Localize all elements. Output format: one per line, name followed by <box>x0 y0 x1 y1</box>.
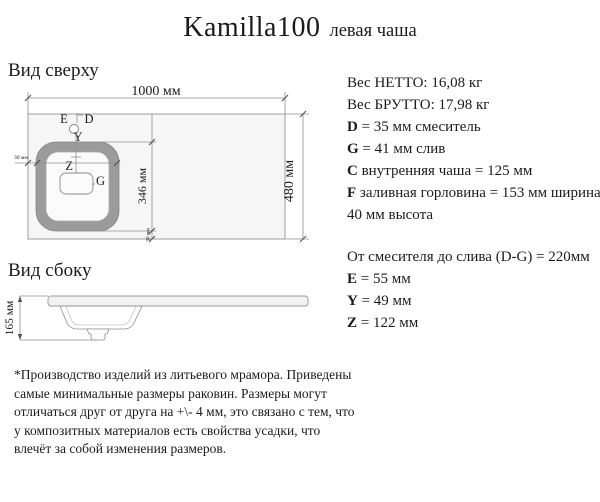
spec-value: заливная горловина = 153 мм ширина, <box>356 185 600 201</box>
bowl-profile <box>60 306 142 329</box>
note-line: влечёт за собой изменения размеров. <box>14 440 374 459</box>
bowl-dimension-label: 346 мм <box>135 168 149 205</box>
spec-key: E <box>347 271 357 287</box>
label-z: Z <box>65 159 73 173</box>
spec-line-f-height: 40 мм высота <box>347 204 600 226</box>
label-d: D <box>84 112 93 126</box>
top-view-heading: Вид сверху <box>8 60 99 82</box>
spec-line-d: D = 35 мм смеситель <box>347 116 600 138</box>
spec-key: C <box>347 163 358 179</box>
bottom-edge-dimension-label: 30 мм <box>146 228 152 242</box>
arrowhead-up <box>18 296 22 302</box>
note-line: отличаться друг от друга на +\- 4 мм, эт… <box>14 403 374 422</box>
product-variant: левая чаша <box>329 21 416 42</box>
top-view-drawing: 1000 мм 480 мм E D Y Z G 346 мм <box>0 85 330 250</box>
depth-dimension-label: 480 мм <box>282 160 297 202</box>
label-e: E <box>60 112 68 126</box>
spec-key: F <box>347 185 356 201</box>
spec-line-f: F заливная горловина = 153 мм ширина, <box>347 182 600 204</box>
note-line: самые минимальные размеры раковин. Разме… <box>14 385 374 404</box>
spec-line-net-weight: Вес НЕТТО: 16,08 кг <box>347 72 600 94</box>
spec-line-g: G = 41 мм слив <box>347 138 600 160</box>
spec-key: D <box>347 119 358 135</box>
bowl-inner-profile <box>66 307 136 325</box>
spec-value: = 49 мм <box>358 293 412 309</box>
slab-outline <box>48 296 308 306</box>
spec-key: Z <box>347 315 357 331</box>
spec-key: G <box>347 141 359 157</box>
drain-fitting-profile <box>87 329 109 340</box>
spec-value: 40 мм высота <box>347 207 433 223</box>
spec-value: = 55 мм <box>357 271 411 287</box>
spec-key: Y <box>347 293 358 309</box>
arrowhead-down <box>18 334 22 340</box>
spec-line-c: C внутренняя чаша = 125 мм <box>347 160 600 182</box>
product-model: Kamilla100 <box>183 12 320 44</box>
spec-line-gross-weight: Вес БРУТТО: 17,98 кг <box>347 94 600 116</box>
drain-outline <box>60 173 93 194</box>
page-title: Kamilla100 левая чаша <box>0 12 600 44</box>
spec-line-dg-distance: От смесителя до слива (D-G) = 220мм <box>347 246 600 268</box>
spec-value: внутренняя чаша = 125 мм <box>358 163 532 179</box>
spec-value: Вес НЕТТО: 16,08 кг <box>347 75 482 91</box>
side-view-heading: Вид сбоку <box>8 260 92 282</box>
spec-line-y: Y = 49 мм <box>347 290 600 312</box>
spec-value: = 35 мм смеситель <box>358 119 481 135</box>
spec-line-e: E = 55 мм <box>347 268 600 290</box>
spec-value: = 122 мм <box>357 315 418 331</box>
production-note: *Производство изделий из литьевого мрамо… <box>14 366 374 459</box>
height-dimension-label: 165 мм <box>4 300 16 335</box>
label-g: G <box>96 174 105 188</box>
label-y: Y <box>73 130 82 144</box>
spec-value: = 41 мм слив <box>359 141 446 157</box>
sink-spec-sheet: Kamilla100 левая чаша Вид сверху 1000 мм… <box>0 0 600 502</box>
spec-value: От смесителя до слива (D-G) = 220мм <box>347 249 590 265</box>
spec-line-z: Z = 122 мм <box>347 312 600 334</box>
note-line: *Производство изделий из литьевого мрамо… <box>14 366 374 385</box>
width-dimension-label: 1000 мм <box>131 85 180 99</box>
note-line: у композитных материалов есть свойства у… <box>14 422 374 441</box>
spec-value: Вес БРУТТО: 17,98 кг <box>347 97 489 113</box>
side-view-drawing: 165 мм <box>0 288 330 358</box>
spec-list: Вес НЕТТО: 16,08 кг Вес БРУТТО: 17,98 кг… <box>347 72 600 334</box>
left-edge-dimension-label: 30 мм <box>14 155 28 161</box>
